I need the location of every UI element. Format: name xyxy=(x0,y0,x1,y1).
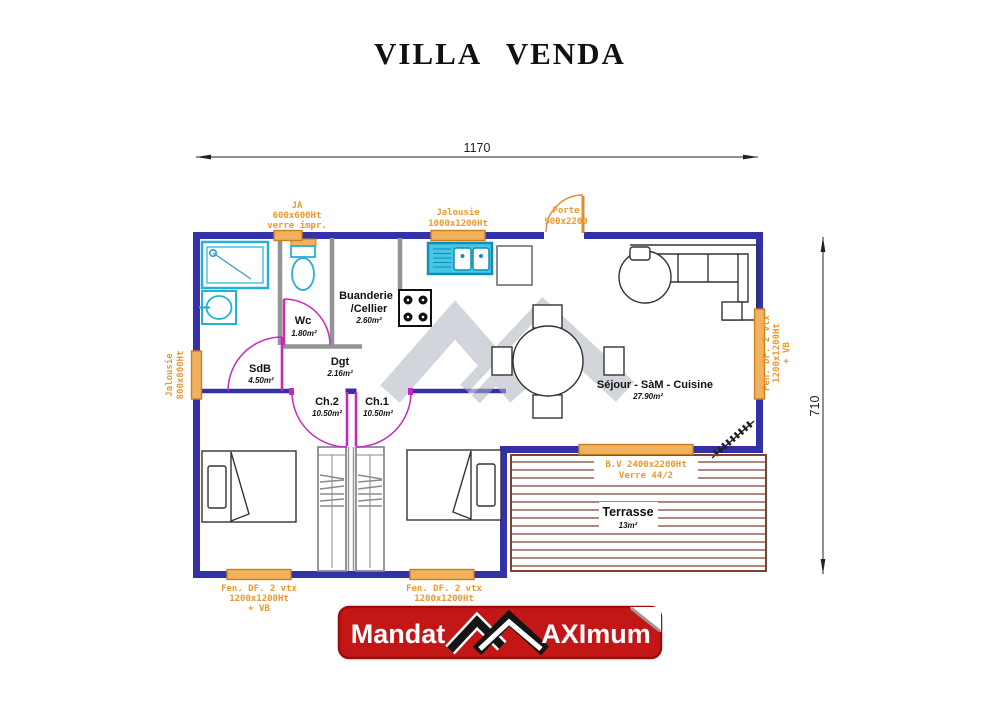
washbasin xyxy=(199,291,236,324)
room-sejour-area: 27.90m² xyxy=(632,392,663,401)
dimension-height: 710 xyxy=(808,237,825,574)
banner-aximum-text: AXImum xyxy=(541,619,651,649)
shower xyxy=(202,242,268,288)
room-ch1-name: Ch.1 xyxy=(365,396,389,408)
label-fen-br-2: 1200x1200Ht xyxy=(414,594,474,604)
stove xyxy=(399,290,431,326)
label-porte-2: 900x2200 xyxy=(544,217,587,227)
label-fen-right-2: 1200x1200Ht xyxy=(772,323,782,383)
dimension-width: 1170 xyxy=(196,141,758,159)
room-wc-name: Wc xyxy=(295,315,312,327)
mandat-banner: Mandat AXImum xyxy=(339,607,661,658)
floor-plan-drawing: VILLA VENDA 1170 710 xyxy=(0,0,1000,708)
room-buanderie-name2: /Cellier xyxy=(351,303,388,315)
label-baie-vitree: B.V 2400x2200Ht Verre 44/2 xyxy=(594,458,698,481)
label-fen-right-3: + VB xyxy=(782,342,792,364)
label-fen-bottom-left: Fen. DF. 2 vtx 1200x1200Ht + VB xyxy=(221,584,297,614)
floor-plan-page: VILLA VENDA 1170 710 xyxy=(0,0,1000,708)
banner-mandat-text: Mandat xyxy=(351,619,446,649)
label-jalousie-left: Jalousie 800x800Ht xyxy=(164,351,186,400)
dimension-width-value: 1170 xyxy=(464,141,491,155)
label-jalousie-top-1: Jalousie xyxy=(436,207,480,218)
label-jalousie-left-2: 800x800Ht xyxy=(176,351,186,400)
wardrobe-ch2 xyxy=(318,447,346,571)
label-ja-2: 600x600Ht xyxy=(273,211,322,221)
room-buanderie-area: 2.60m² xyxy=(355,316,382,325)
window-jalousie-top xyxy=(431,231,485,241)
wardrobe-ch1 xyxy=(356,447,384,571)
room-ch2-name: Ch.2 xyxy=(315,396,339,408)
kitchen-counter xyxy=(497,246,532,285)
label-fen-right: Fen. DF. 2 vtx 1200x1200Ht + VB xyxy=(762,314,792,390)
window-fen-bottom-left xyxy=(227,570,291,580)
label-bv-2: Verre 44/2 xyxy=(619,471,673,481)
room-wc-area: 1.80m² xyxy=(291,329,317,338)
label-ja: JA 600x600Ht verre impr. xyxy=(267,201,327,231)
room-terrasse-area: 13m² xyxy=(619,521,638,530)
window-ja xyxy=(274,231,302,241)
bed-ch1 xyxy=(407,450,501,520)
label-fen-right-1: Fen. DF. 2 vtx xyxy=(762,314,772,390)
window-baie-vitree xyxy=(579,445,693,455)
label-jalousie-top: Jalousie 1000x1200Ht xyxy=(428,207,488,229)
label-fen-bl-2: 1200x1200Ht xyxy=(229,594,289,604)
label-fen-br-1: Fen. DF. 2 vtx xyxy=(406,584,482,594)
room-terrasse-name: Terrasse xyxy=(602,505,653,519)
sofa xyxy=(619,245,757,320)
room-ch2-area: 10.50m² xyxy=(312,409,342,418)
label-porte: Porte 900x2200 xyxy=(544,206,587,227)
dimension-height-value: 710 xyxy=(808,396,822,417)
label-ja-3: verre impr. xyxy=(267,220,327,231)
windows xyxy=(192,231,765,580)
label-fen-bottom-right: Fen. DF. 2 vtx 1200x1200Ht xyxy=(406,584,482,604)
room-dgt-area: 2.16m² xyxy=(326,369,353,378)
label-jalousie-left-1: Jalousie xyxy=(164,353,175,397)
bed-ch2 xyxy=(202,451,296,522)
toilet xyxy=(291,239,316,290)
window-jalousie-left xyxy=(192,351,202,399)
room-sdb-area: 4.50m² xyxy=(247,376,274,385)
label-fen-bl-1: Fen. DF. 2 vtx xyxy=(221,584,297,594)
page-title: VILLA VENDA xyxy=(374,36,626,71)
room-ch1-area: 10.50m² xyxy=(363,409,393,418)
room-buanderie-name: Buanderie xyxy=(339,290,393,302)
label-bv-1: B.V 2400x2200Ht xyxy=(605,460,686,470)
room-sdb-name: SdB xyxy=(249,363,271,375)
room-dgt-name: Dgt xyxy=(331,356,350,368)
label-fen-bl-3: + VB xyxy=(248,604,270,614)
label-ja-1: JA xyxy=(292,201,303,211)
kitchen-sink xyxy=(428,243,492,274)
room-sejour-name: Séjour - SàM - Cuisine xyxy=(597,379,713,391)
label-porte-1: Porte xyxy=(552,206,580,216)
label-jalousie-top-2: 1000x1200Ht xyxy=(428,219,488,229)
window-fen-bottom-right xyxy=(410,570,474,580)
